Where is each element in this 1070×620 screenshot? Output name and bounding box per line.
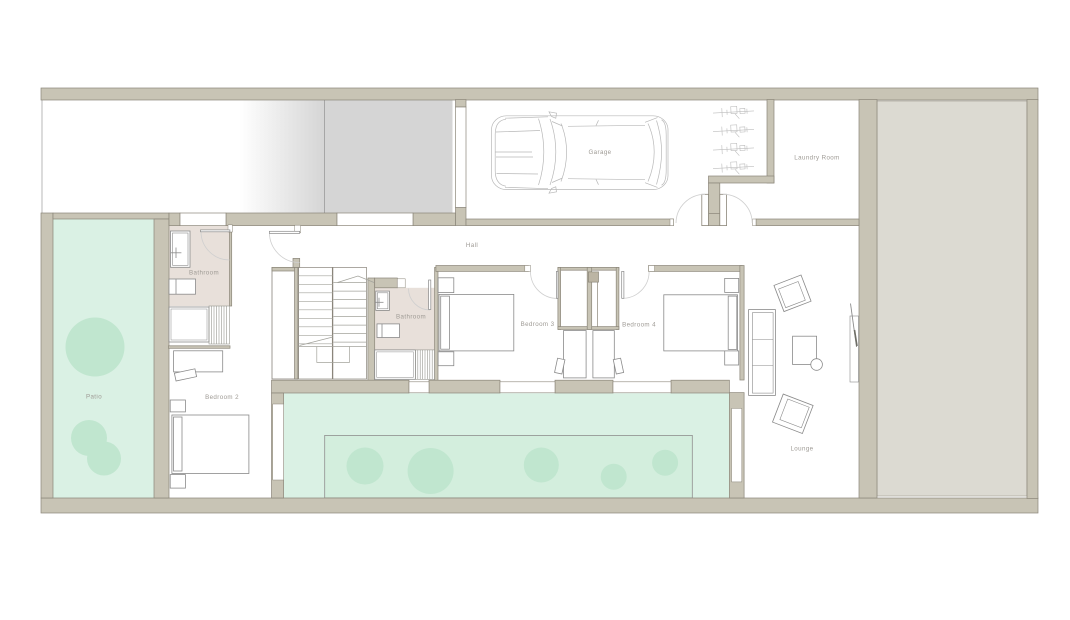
svg-text:Bathroom: Bathroom — [189, 270, 219, 277]
svg-text:Bathroom: Bathroom — [396, 314, 426, 321]
svg-text:Hall: Hall — [466, 242, 478, 249]
svg-text:Bedroom 4: Bedroom 4 — [622, 322, 656, 329]
svg-text:Bedroom 2: Bedroom 2 — [205, 394, 239, 401]
svg-text:Lounge: Lounge — [790, 446, 813, 453]
svg-text:Bedroom 3: Bedroom 3 — [521, 321, 555, 328]
svg-text:Garage: Garage — [588, 149, 611, 156]
svg-text:Laundry Room: Laundry Room — [794, 155, 839, 162]
svg-text:Patio: Patio — [86, 394, 102, 401]
